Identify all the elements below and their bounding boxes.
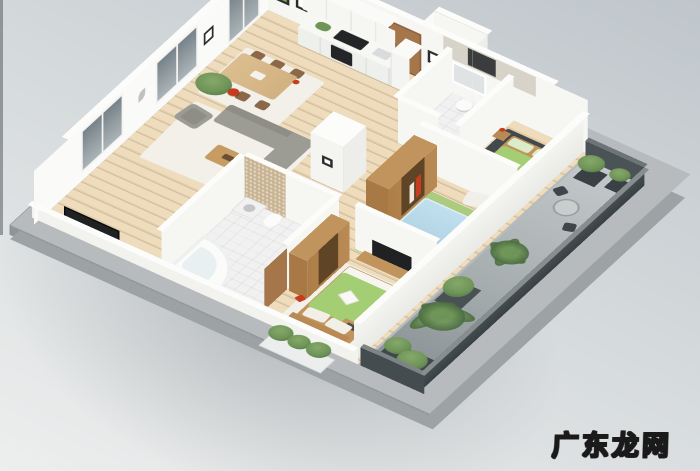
- window-mullion: [176, 42, 178, 86]
- divider-picture-frame: [322, 155, 333, 168]
- table-centerpiece: [249, 70, 266, 80]
- counter-plant: [313, 20, 333, 32]
- wall-leaf-decal: [138, 87, 145, 103]
- photo-edge-artifact: [0, 0, 3, 235]
- bedroom-picture-frame-green: [270, 0, 290, 6]
- washer-door-icon: [241, 203, 258, 214]
- watermark-text: 广东龙网: [551, 424, 672, 463]
- floor-plan-render: 广东龙网: [0, 0, 700, 471]
- armchair-cushion: [180, 107, 208, 125]
- glass-door-mullion: [243, 0, 245, 32]
- window-mullion: [102, 111, 104, 155]
- dining-picture-frame: [204, 25, 214, 46]
